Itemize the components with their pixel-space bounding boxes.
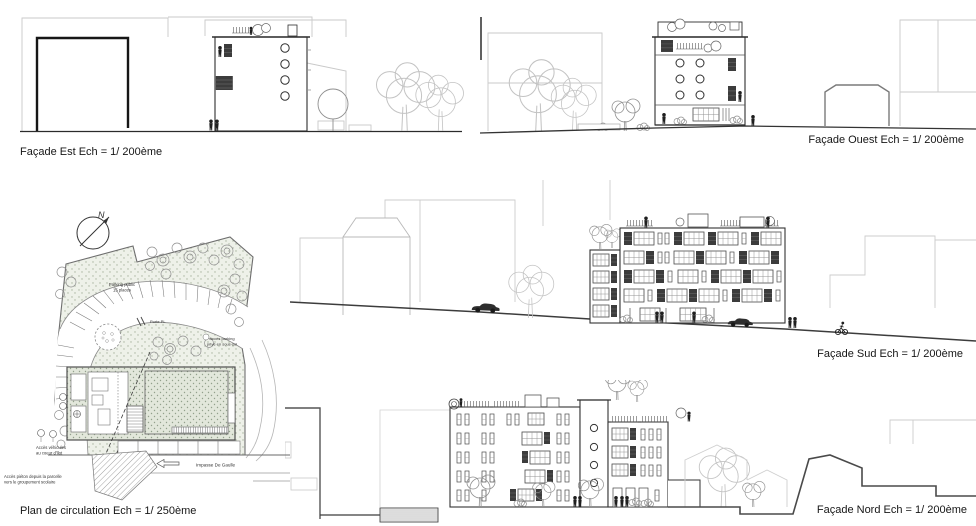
label-parking-public: Parking public <box>109 282 135 287</box>
nord-entry-steps <box>380 508 438 522</box>
compass-north-letter: N <box>98 210 105 220</box>
building-footprint <box>67 367 235 440</box>
sud-tree-left <box>509 265 554 318</box>
compass: N <box>77 210 109 249</box>
sud-pedestrian-2 <box>793 317 797 328</box>
sud-pedestrian <box>788 317 792 328</box>
circulation-plan-drawing: N <box>0 190 300 526</box>
ouest-building <box>652 19 748 125</box>
sud-building <box>590 214 785 323</box>
adjacent-road-right <box>246 340 276 461</box>
ouest-ground-line <box>480 126 976 133</box>
label-parking-places: 15 places <box>113 288 131 293</box>
label-acces-parking-2: privé en sous-sol <box>207 342 237 347</box>
est-building <box>209 24 311 132</box>
est-context-buildings <box>22 17 371 131</box>
facade-est-caption: Façade Est Ech = 1/ 200ème <box>20 146 162 158</box>
label-acces-pieton: Accès piéton depuis la parcelle <box>4 474 62 479</box>
label-street-name: Impasse De Gaulle <box>196 463 236 468</box>
label-acces-vehicules: Accès véhicules <box>36 445 66 450</box>
nord-context-right <box>668 420 976 514</box>
courtyard-tree <box>95 324 121 350</box>
ouest-pedestrian <box>751 115 755 126</box>
facade-sud-caption: Façade Sud Ech = 1/ 200ème <box>817 348 963 360</box>
facade-sud-drawing <box>290 180 976 366</box>
nord-building <box>449 380 700 507</box>
label-acces-vehicules-2: au coeur d'îlot <box>36 451 63 456</box>
label-acces-parking: Accès parking <box>209 336 234 341</box>
plan-caption: Plan de circulation Ech = 1/ 250ème <box>20 505 196 517</box>
label-porte-pl: Porte PL <box>150 319 166 324</box>
label-acces-pieton-2: vers le groupement scolaire <box>4 480 56 485</box>
facade-est-drawing <box>0 0 470 166</box>
sud-context-house <box>343 218 410 315</box>
est-adjacent-building-section <box>37 38 128 131</box>
nord-context-left <box>285 408 450 519</box>
ouest-trees <box>509 60 649 131</box>
street-direction-arrow <box>157 460 179 468</box>
pedestrian-ramp-hatch <box>92 451 157 500</box>
facade-ouest-caption: Façade Ouest Ech = 1/ 200ème <box>808 134 964 146</box>
facade-nord-caption: Façade Nord Ech = 1/ 200ème <box>817 504 967 516</box>
drawing-sheet: N <box>0 0 976 526</box>
